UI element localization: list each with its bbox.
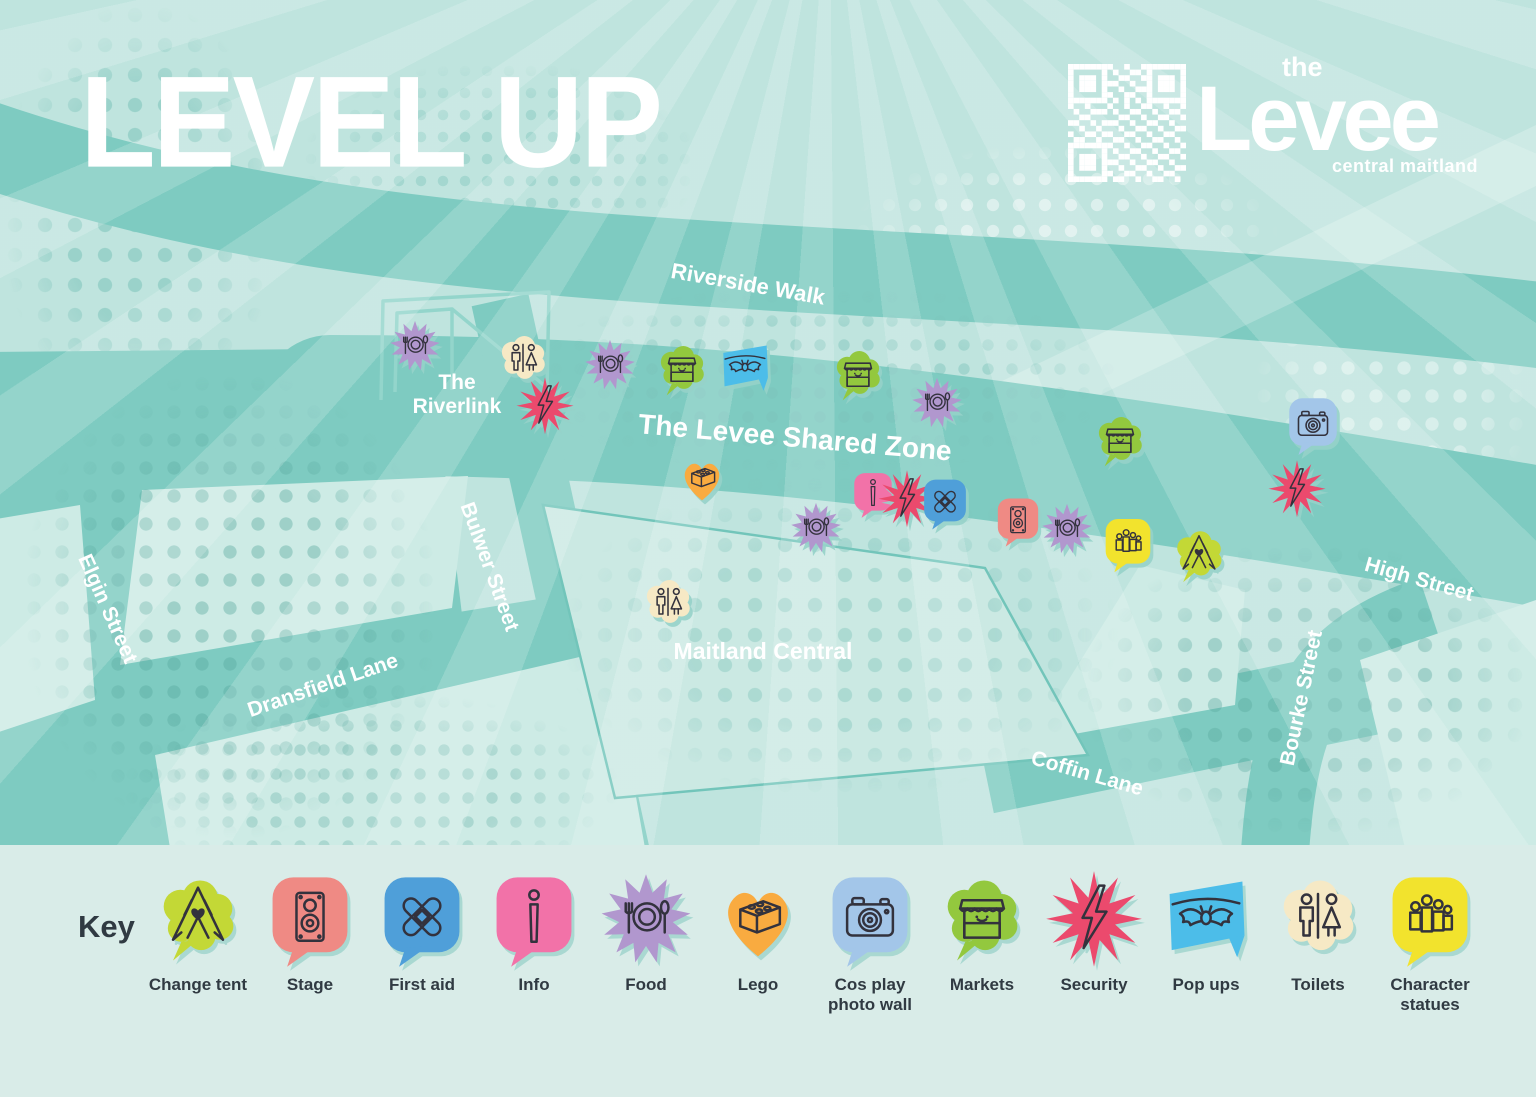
character-statues-icon [1378, 869, 1482, 973]
marker-food [1038, 501, 1096, 559]
key-item-security: Security [1038, 869, 1150, 1014]
key-item-label: Stage [287, 975, 333, 995]
logo-name: Levee [1196, 77, 1482, 162]
first-aid-icon [370, 869, 474, 973]
level-up-event-map-poster: { "title": "LEVEL UP", "logo": { "line1"… [0, 0, 1536, 1097]
info-icon [482, 869, 586, 973]
key-heading: Key [78, 909, 135, 945]
change-tent-icon [146, 869, 250, 973]
poster-canvas: Riverside WalkThe RiverlinkThe Levee Sha… [0, 0, 1536, 1097]
key-item-pop-ups: Pop ups [1150, 869, 1262, 1014]
lego-icon [706, 869, 810, 973]
key-item-cos-play: Cos play photo wall [814, 869, 926, 1014]
key-section: Key Change tent Stage First aid Info Foo… [0, 845, 1536, 1097]
key-items-row: Change tent Stage First aid Info Food Le… [142, 869, 1486, 1014]
key-item-stage: Stage [254, 869, 366, 1014]
key-item-label: Food [625, 975, 667, 995]
key-item-first-aid: First aid [366, 869, 478, 1014]
marker-change-tent [1166, 524, 1232, 590]
toilets-icon [1266, 869, 1370, 973]
city-block [0, 505, 95, 735]
marker-toilets [636, 573, 700, 637]
markets-icon [930, 869, 1034, 973]
key-item-label: Markets [950, 975, 1014, 995]
key-item-label: Change tent [149, 975, 247, 995]
key-item-label: Pop ups [1172, 975, 1239, 995]
marker-food [386, 318, 444, 376]
pop-ups-icon [1154, 869, 1258, 973]
levee-logo: the Levee central maitland [1196, 54, 1482, 177]
marker-food [787, 500, 845, 558]
marker-markets [650, 339, 714, 403]
marker-character-statues [1097, 514, 1159, 576]
marker-markets [1088, 410, 1152, 474]
marker-cos-play [1280, 393, 1346, 459]
marker-pop-ups [714, 338, 776, 400]
cos-play-icon [818, 869, 922, 973]
map-label-maitland-central: Maitland Central [674, 638, 853, 664]
marker-food [581, 337, 639, 395]
stage-icon [258, 869, 362, 973]
key-item-label: Info [518, 975, 549, 995]
key-item-label: Lego [738, 975, 779, 995]
marker-first-aid [916, 475, 974, 533]
key-item-lego: Lego [702, 869, 814, 1014]
key-item-label: Toilets [1291, 975, 1345, 995]
marker-markets [826, 344, 890, 408]
key-item-label: First aid [389, 975, 455, 995]
page-title: LEVEL UP [80, 48, 660, 197]
marker-food [908, 375, 966, 433]
key-item-change-tent: Change tent [142, 869, 254, 1014]
key-item-label: Cos play photo wall [814, 975, 926, 1014]
marker-lego [672, 450, 732, 510]
key-item-food: Food [590, 869, 702, 1014]
key-item-info: Info [478, 869, 590, 1014]
security-icon [1042, 869, 1146, 973]
qr-code [1068, 64, 1186, 182]
key-item-label: Security [1060, 975, 1127, 995]
key-item-toilets: Toilets [1262, 869, 1374, 1014]
food-icon [594, 869, 698, 973]
marker-security [1266, 459, 1328, 521]
key-item-label: Character statues [1374, 975, 1486, 1014]
marker-security [514, 376, 576, 438]
key-item-markets: Markets [926, 869, 1038, 1014]
key-item-character-statues: Character statues [1374, 869, 1486, 1014]
